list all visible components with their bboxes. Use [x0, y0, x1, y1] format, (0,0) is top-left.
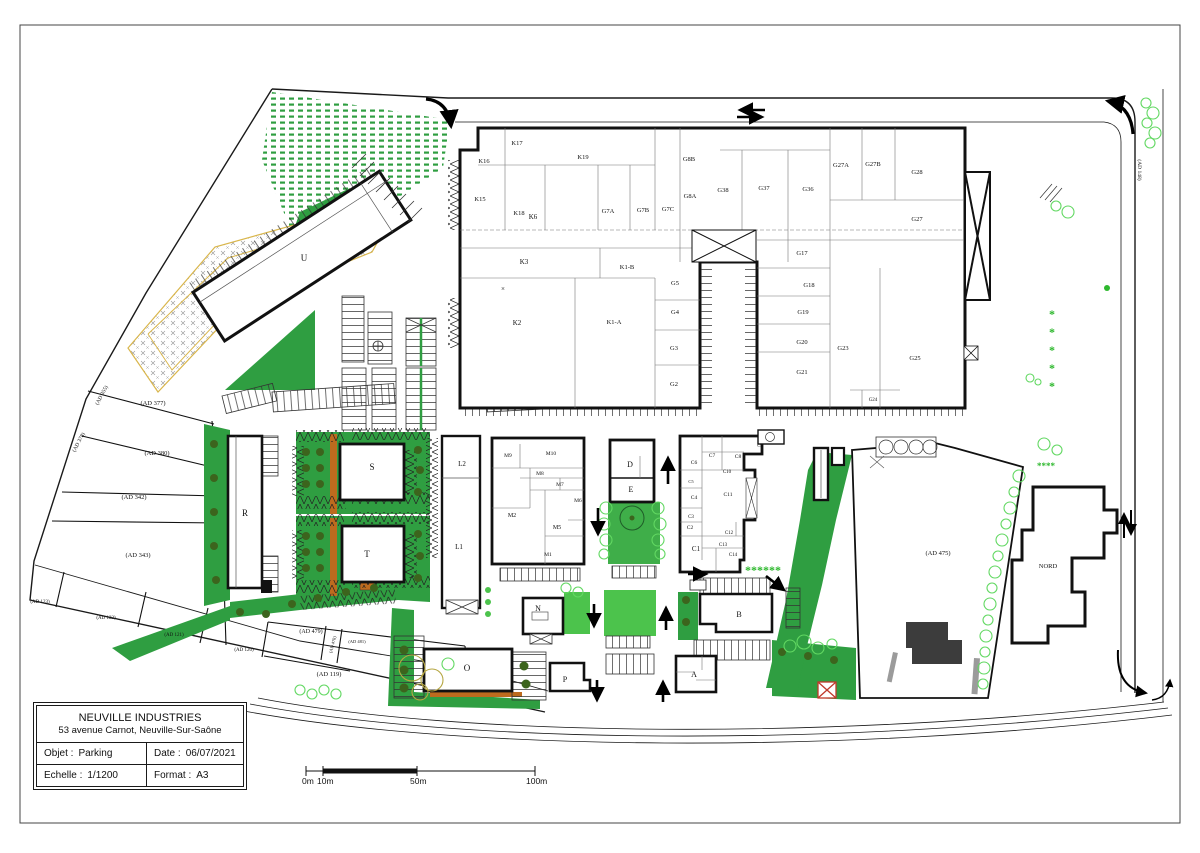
room-label: × [501, 285, 505, 293]
building-p [550, 663, 590, 691]
bldg-label: U [301, 253, 308, 263]
room-label: K1-B [620, 264, 635, 271]
room-label: C1 [692, 545, 701, 553]
building-s [340, 444, 404, 500]
scale-tick-10: 10m [317, 776, 334, 786]
room-label: G21 [796, 369, 807, 376]
parcel-label: (AD 479) [299, 628, 322, 635]
star-label: **** [1037, 461, 1056, 471]
echelle-value: 1/1200 [87, 770, 118, 781]
scale-bar-graphic [302, 765, 552, 777]
room-label: C12 [725, 531, 734, 536]
room-label: G37 [758, 185, 770, 192]
scale-tick-50: 50m [410, 776, 427, 786]
star-label: * [1049, 361, 1055, 375]
bldg-label: N [535, 604, 541, 613]
bldg-label: B [736, 610, 741, 619]
room-label: G7A [602, 208, 615, 215]
room-label: C10 [723, 470, 732, 475]
room-label: G3 [670, 345, 678, 352]
echelle-label: Echelle : [44, 770, 82, 781]
room-label: M1 [544, 552, 552, 558]
bldg-label: E [629, 485, 634, 494]
room-label: M5 [553, 525, 561, 531]
star-label: * [1049, 307, 1055, 321]
room-label: K1-A [607, 319, 622, 326]
room-label: K15 [474, 196, 485, 203]
room-label: C11 [724, 492, 733, 498]
room-label: K16 [478, 158, 490, 165]
room-label: C6 [691, 460, 698, 466]
bldg-label: D [627, 460, 633, 469]
room-label: K17 [511, 140, 523, 147]
scale-tick-0: 0m [302, 776, 314, 786]
room-label: M9 [504, 453, 512, 459]
bldg-label: P [563, 675, 568, 684]
scale-bar: 0m 10m 50m 100m [302, 764, 552, 790]
star-label: * [1049, 343, 1055, 357]
room-label: M2 [508, 513, 516, 519]
parcel-label: (AD 122) [96, 616, 116, 621]
parcel-label: (AD 120) [234, 648, 254, 653]
room-label: G8A [684, 193, 697, 200]
room-label: G38 [717, 187, 728, 194]
room-label: G18 [803, 282, 814, 289]
room-label: K6 [529, 213, 538, 221]
objet-value: Parking [78, 748, 112, 759]
room-label: G25 [909, 355, 920, 362]
date-value: 06/07/2021 [186, 748, 236, 759]
room-label: L2 [458, 460, 466, 468]
date-label: Date : [154, 748, 181, 759]
bldg-label: A [691, 670, 697, 679]
room-label: C4 [691, 495, 698, 501]
room-label: G24 [869, 398, 878, 403]
star-label: ****** [745, 563, 781, 577]
room-label: C13 [719, 543, 728, 548]
room-label: G4 [671, 309, 680, 316]
parcel-label: (AD 342) [121, 494, 146, 501]
bldg-label: S [369, 462, 374, 472]
room-label: C7 [709, 453, 716, 459]
company-address: 53 avenue Carnot, Neuville-Sur-Saône [58, 725, 221, 736]
room-label: M8 [536, 471, 544, 477]
room-label: C3 [688, 515, 694, 520]
room-label: M10 [546, 451, 557, 457]
parcel-label: (AD 380) [144, 450, 169, 457]
room-label: G17 [796, 250, 808, 257]
parcel-label: (AD 121) [164, 633, 184, 638]
room-label: K18 [513, 210, 524, 217]
objet-label: Objet : [44, 748, 73, 759]
room-label: C2 [687, 525, 694, 531]
star-label: * [1049, 379, 1055, 393]
room-label: G36 [802, 186, 814, 193]
parcel-label: (AD 148) [1136, 159, 1143, 180]
parcel-label: (AD 377) [140, 400, 165, 407]
room-label: G27B [865, 161, 881, 168]
room-label: G23 [837, 345, 848, 352]
format-value: A3 [196, 770, 208, 781]
room-label: G2 [670, 381, 678, 388]
bldg-label: O [464, 663, 471, 673]
room-label: K3 [520, 258, 529, 266]
room-label: G19 [797, 309, 808, 316]
parcel-label: (AD 119) [317, 671, 342, 678]
room-label: C14 [729, 553, 738, 558]
red-cross-marker [818, 682, 836, 698]
parcel-label: (AD 475) [925, 550, 950, 557]
room-label: G20 [796, 339, 807, 346]
bldg-label: NORD [1039, 563, 1058, 570]
format-label: Format : [154, 770, 191, 781]
room-label: M7 [556, 482, 564, 488]
company-name: NEUVILLE INDUSTRIES [79, 712, 202, 724]
building-t [342, 526, 404, 582]
parcel-label: (AD 123) [30, 600, 50, 605]
room-label: C9 [757, 443, 763, 448]
room-label: G7B [637, 207, 650, 214]
title-block: NEUVILLE INDUSTRIES 53 avenue Carnot, Ne… [33, 702, 247, 790]
room-label: G5 [671, 280, 679, 287]
bldg-label: R [242, 508, 248, 518]
room-label: G8B [683, 156, 696, 163]
room-label: M6 [574, 498, 582, 504]
manhole-icon [373, 341, 383, 351]
room-label: G28 [911, 169, 922, 176]
room-label: K19 [577, 154, 588, 161]
parcel-label: (AD 481) [348, 639, 366, 644]
scale-tick-100: 100m [526, 776, 547, 786]
room-label: L1 [455, 543, 463, 551]
room-label: G27A [833, 162, 849, 169]
room-label: G7C [662, 206, 674, 213]
room-label: K2 [513, 319, 522, 327]
room-label: C5 [688, 479, 694, 484]
bldg-label: T [364, 549, 370, 559]
star-label: * [1049, 325, 1055, 339]
room-label: C8 [735, 454, 742, 460]
parcel-label: (AD 343) [125, 552, 150, 559]
room-label: G27 [911, 216, 923, 223]
